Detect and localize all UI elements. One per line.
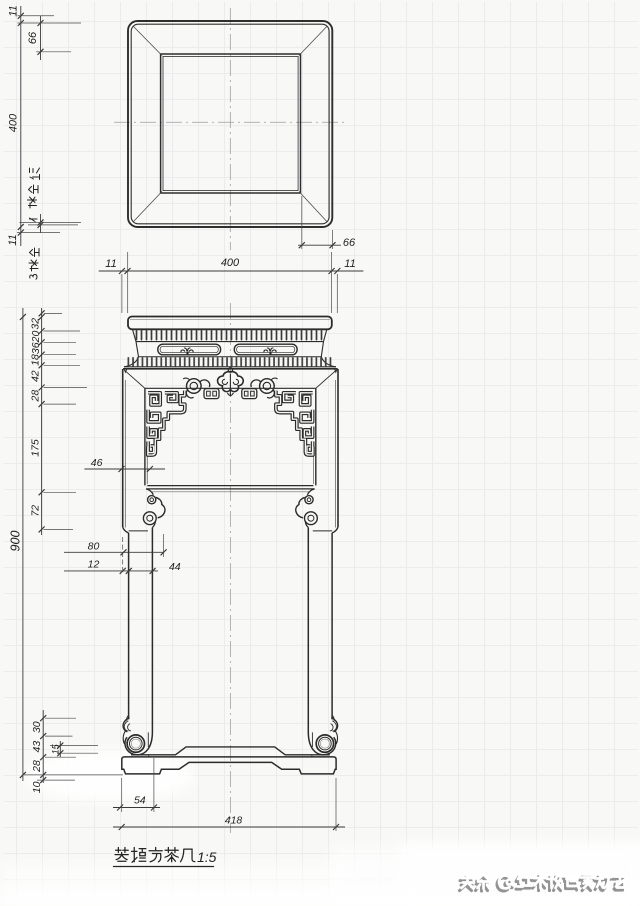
svg-text:28: 28 (31, 760, 43, 773)
svg-text:72: 72 (30, 505, 42, 517)
svg-text:18: 18 (30, 354, 42, 366)
svg-text:46: 46 (91, 457, 103, 469)
svg-text:11: 11 (344, 258, 355, 270)
svg-text:400: 400 (8, 113, 20, 132)
svg-text:11: 11 (7, 234, 19, 245)
svg-text:36: 36 (30, 342, 42, 354)
svg-text:1:5: 1:5 (197, 849, 217, 865)
svg-text:42: 42 (30, 370, 42, 382)
svg-text:10: 10 (31, 781, 43, 793)
svg-text:43: 43 (31, 741, 43, 753)
svg-text:32: 32 (30, 318, 42, 330)
svg-text:44: 44 (169, 561, 181, 573)
svg-text:418: 418 (225, 814, 243, 826)
svg-text:20: 20 (30, 331, 42, 344)
svg-text:28: 28 (30, 390, 42, 403)
svg-text:11: 11 (8, 5, 20, 16)
svg-text:30: 30 (31, 721, 43, 733)
svg-text:175: 175 (30, 439, 42, 457)
svg-text:54: 54 (134, 795, 146, 807)
svg-text:80: 80 (88, 540, 100, 552)
svg-text:15: 15 (50, 743, 60, 754)
svg-text:66: 66 (27, 31, 39, 44)
svg-text:11: 11 (105, 258, 116, 270)
svg-text:12: 12 (88, 559, 100, 571)
svg-text:66: 66 (343, 237, 356, 249)
svg-text:400: 400 (221, 257, 240, 269)
svg-text:900: 900 (9, 531, 23, 552)
